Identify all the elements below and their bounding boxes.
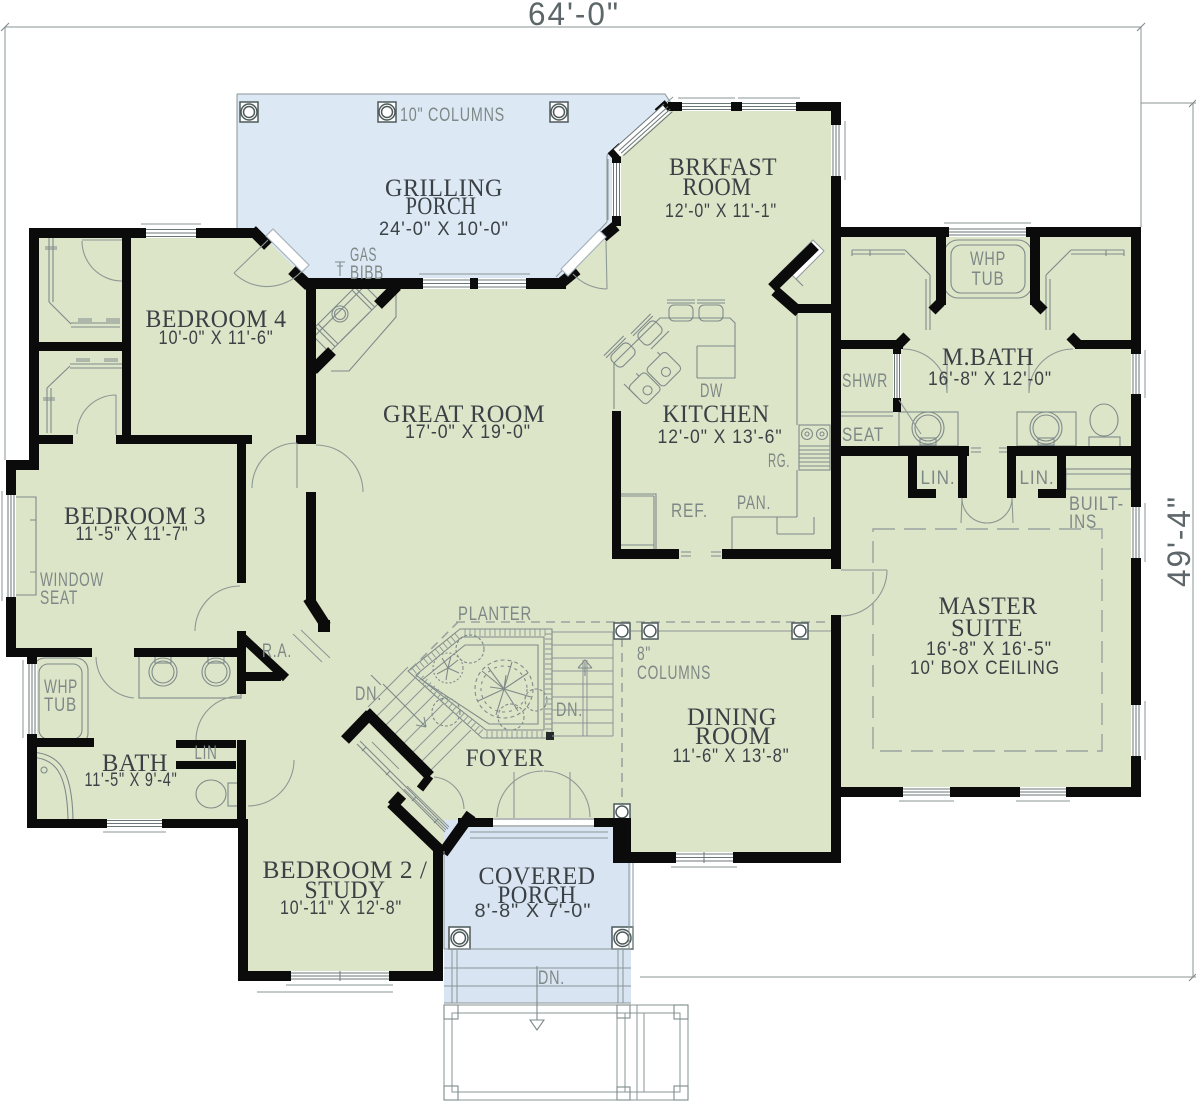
svg-text:PORCH: PORCH (406, 193, 477, 220)
svg-text:SEAT: SEAT (40, 588, 78, 609)
svg-text:DW: DW (700, 381, 723, 402)
svg-text:TUB: TUB (972, 269, 1005, 290)
svg-text:8": 8" (637, 644, 651, 665)
svg-text:SHWR: SHWR (842, 371, 888, 392)
svg-text:24'-0" X 10'-0": 24'-0" X 10'-0" (379, 219, 509, 240)
svg-text:RG.: RG. (768, 451, 790, 472)
svg-text:SEAT: SEAT (842, 425, 884, 446)
svg-text:17'-0" X 19'-0": 17'-0" X 19'-0" (405, 422, 531, 443)
svg-text:49'-4": 49'-4" (1161, 495, 1196, 587)
svg-text:16'-8" X 12'-0": 16'-8" X 12'-0" (928, 369, 1052, 390)
svg-text:R.A.: R.A. (262, 641, 292, 662)
svg-text:10" COLUMNS: 10" COLUMNS (400, 105, 505, 126)
svg-text:PLANTER: PLANTER (458, 604, 532, 625)
svg-text:SUITE: SUITE (951, 615, 1023, 642)
svg-text:11'-5" X 9'-4": 11'-5" X 9'-4" (85, 770, 178, 791)
svg-text:FOYER: FOYER (466, 745, 545, 772)
svg-text:DN.: DN. (538, 968, 565, 989)
svg-text:LIN.: LIN. (1020, 468, 1055, 489)
svg-text:ROOM: ROOM (683, 174, 752, 201)
svg-text:DN.: DN. (556, 700, 583, 721)
svg-text:10'-11" X 12'-8": 10'-11" X 12'-8" (280, 898, 402, 919)
svg-text:PAN.: PAN. (737, 493, 771, 514)
svg-text:8'-8" X 7'-0": 8'-8" X 7'-0" (475, 901, 592, 922)
svg-text:LIN: LIN (195, 743, 218, 764)
svg-text:64'-0": 64'-0" (528, 0, 620, 32)
svg-text:INS: INS (1069, 512, 1097, 533)
svg-text:11'-6" X 13'-8": 11'-6" X 13'-8" (673, 746, 790, 767)
svg-text:TUB: TUB (44, 695, 77, 716)
svg-text:M.BATH: M.BATH (942, 344, 1034, 371)
svg-text:10'-0" X 11'-6": 10'-0" X 11'-6" (159, 328, 274, 349)
svg-text:11'-5" X 11'-7": 11'-5" X 11'-7" (76, 524, 189, 545)
svg-text:12'-0" X 11'-1": 12'-0" X 11'-1" (665, 201, 777, 222)
svg-text:WHP: WHP (970, 249, 1006, 270)
svg-text:KITCHEN: KITCHEN (663, 401, 770, 428)
svg-text:12'-0" X 13'-6": 12'-0" X 13'-6" (658, 427, 783, 448)
svg-text:DN.: DN. (355, 684, 382, 705)
svg-text:LIN.: LIN. (921, 468, 956, 489)
svg-text:16'-8" X 16'-5": 16'-8" X 16'-5" (926, 639, 1052, 660)
svg-text:COLUMNS: COLUMNS (637, 663, 711, 684)
svg-text:REF.: REF. (671, 501, 708, 522)
svg-text:BIBB: BIBB (350, 263, 384, 284)
svg-text:10' BOX CEILING: 10' BOX CEILING (910, 658, 1060, 679)
